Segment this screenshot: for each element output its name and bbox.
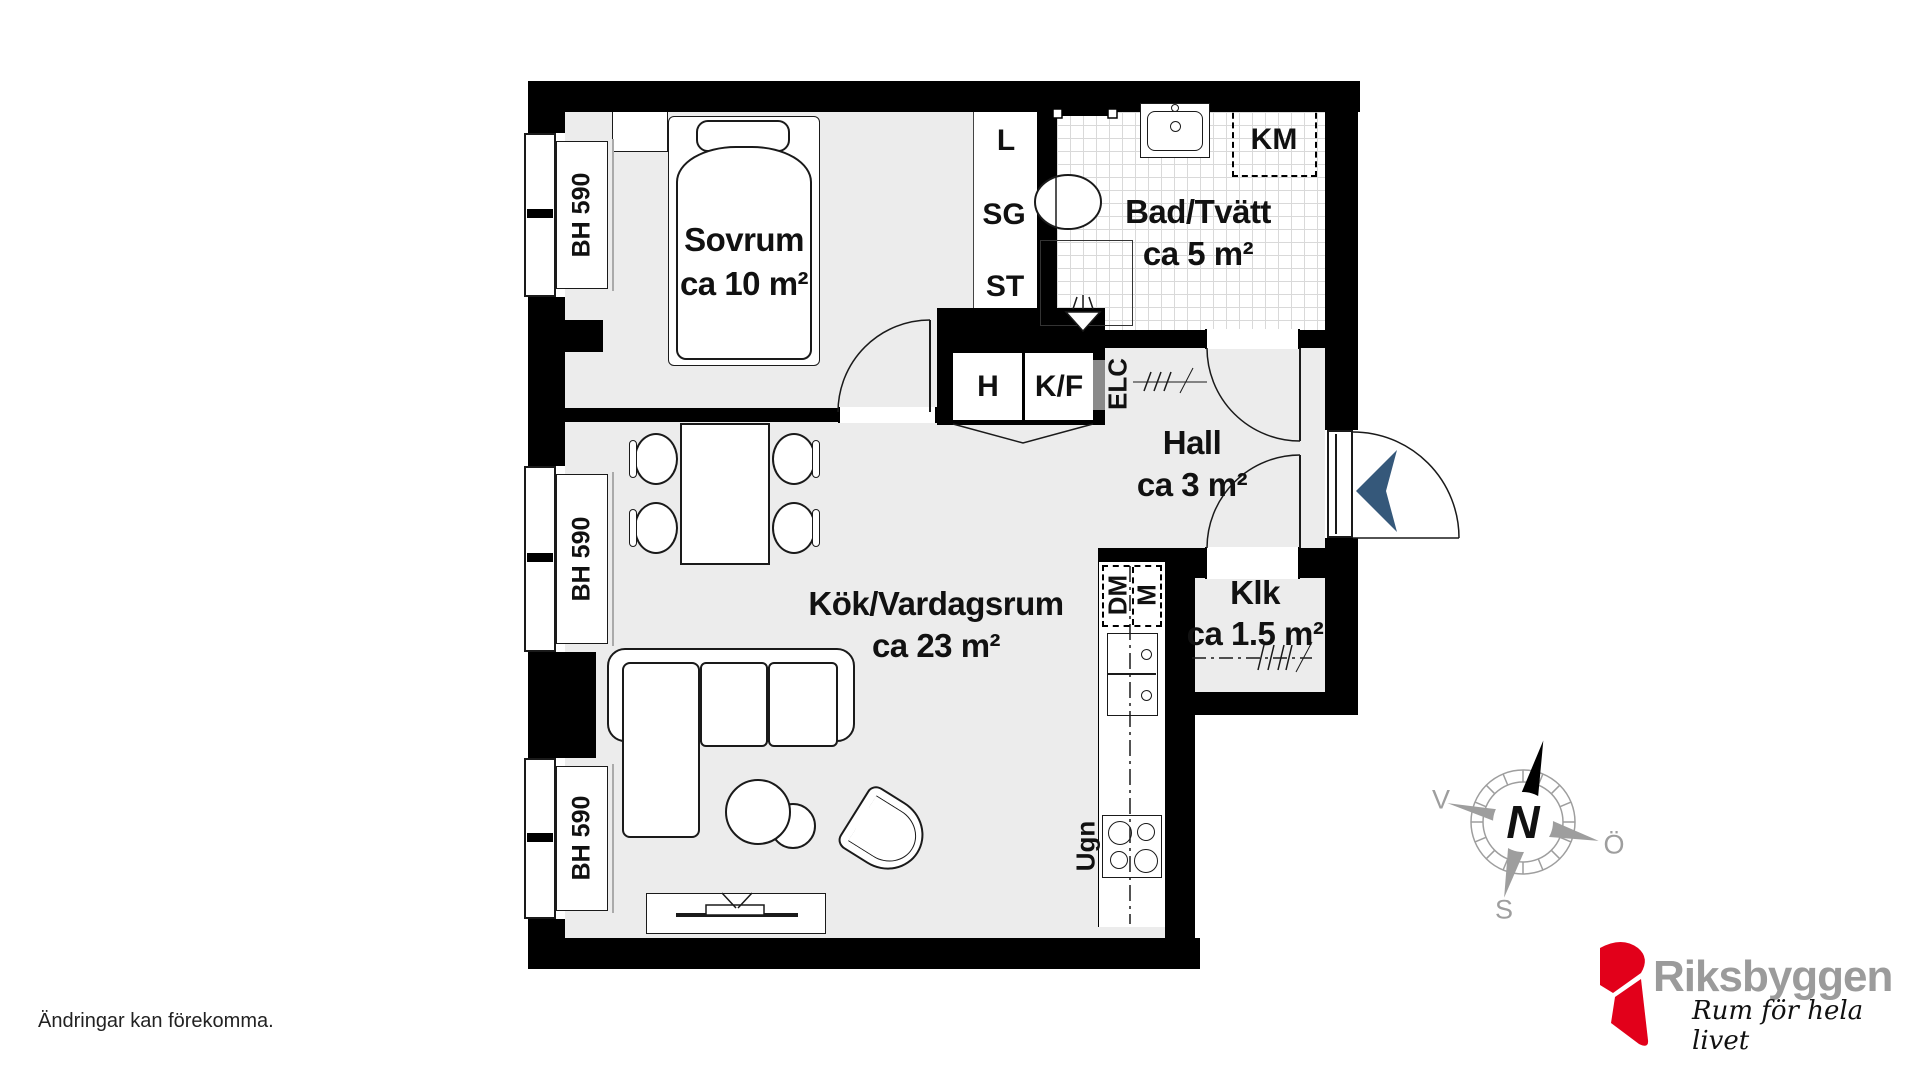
stove-burner: [1137, 823, 1155, 841]
wall-kitchen-bar: [1165, 548, 1195, 938]
fixture-label-m: M: [1132, 584, 1163, 606]
window-mullion: [527, 833, 553, 842]
wall-bottom: [528, 938, 1200, 969]
fixture-label-elc: ELC: [1103, 358, 1134, 410]
fixture-label-kf: K/F: [1035, 370, 1083, 404]
fixture-label-linen: L: [997, 124, 1015, 158]
room-area-hall: ca 3 m²: [1137, 466, 1247, 504]
bedroom-door-opening: [838, 407, 937, 423]
fixture-label-st: ST: [986, 270, 1024, 304]
entrance-arrow-icon: [1356, 450, 1397, 532]
room-label-bad: Bad/Tvätt: [1125, 193, 1271, 231]
dining-table: [680, 423, 770, 565]
chair-backrest: [812, 509, 820, 547]
fixture-label-sg: SG: [982, 198, 1025, 232]
room-label-kok: Kök/Vardagsrum: [808, 585, 1063, 623]
logo-brand-text: Riksbyggen: [1653, 952, 1892, 1002]
compass-south-label: S: [1495, 895, 1513, 926]
window-height-label: BH 590: [568, 796, 597, 881]
window-sill-line: [612, 472, 614, 646]
entrance-door-panel-line: [1335, 434, 1337, 534]
window-height-label: BH 590: [568, 517, 597, 602]
dining-chair: [634, 502, 678, 554]
room-area-kok: ca 23 m²: [872, 627, 1000, 665]
window-sill-line: [612, 764, 614, 913]
compass-north-label: N: [1506, 795, 1539, 849]
wall-left-c: [528, 652, 596, 758]
wall-bedroom-living: [565, 408, 838, 422]
logo-tagline-text: Rum för hela livet: [1692, 996, 1920, 1056]
entrance-door: [1327, 430, 1353, 538]
room-area-bad: ca 5 m²: [1143, 235, 1253, 273]
floorplan-page: Sovrum ca 10 m² Bad/Tvätt ca 5 m² Hall c…: [0, 0, 1920, 1080]
fixture-label-km: KM: [1251, 123, 1298, 157]
faucet-dot: [1171, 104, 1179, 112]
faucet-dot: [1170, 121, 1181, 132]
dining-chair: [634, 433, 678, 485]
kitchen-sink-unit: [1107, 633, 1158, 716]
chair-backrest: [812, 440, 820, 478]
sink-drain: [1141, 649, 1152, 660]
window-mullion: [527, 553, 553, 562]
sofa-cushion: [768, 662, 838, 747]
sink-divider: [1108, 673, 1156, 675]
stove-burner: [1134, 849, 1158, 873]
wall-left-a: [528, 81, 565, 133]
compass-east-arm: [1532, 814, 1601, 851]
fixture-label-ugn: Ugn: [1071, 821, 1102, 872]
wall-right-upper: [1325, 81, 1358, 432]
chair-backrest: [629, 509, 637, 547]
stove-burner: [1110, 851, 1128, 869]
tv-bench: [646, 893, 826, 934]
sink-drain: [1141, 690, 1152, 701]
wall-left-b: [528, 297, 565, 466]
entrance-door-swing: [1353, 432, 1459, 538]
window-height-label: BH 590: [568, 173, 597, 258]
dining-chair: [772, 433, 816, 485]
stove-burner: [1108, 821, 1132, 845]
shower-enclosure: [1040, 240, 1133, 326]
chair-backrest: [629, 440, 637, 478]
compass-east-label: Ö: [1603, 830, 1624, 861]
window-sill-line: [612, 139, 614, 291]
compass-west-label: V: [1432, 785, 1450, 816]
wall-left-d: [528, 919, 565, 969]
room-label-sovrum: Sovrum: [684, 221, 804, 259]
room-label-hall: Hall: [1163, 424, 1222, 462]
bathroom-door-opening: [1205, 329, 1300, 349]
fixture-label-h: H: [977, 370, 999, 404]
nightstand: [612, 108, 668, 152]
room-label-klk: Klk: [1230, 574, 1280, 612]
wall-left-pier: [565, 320, 603, 352]
dining-chair: [772, 502, 816, 554]
disclaimer-note: Ändringar kan förekomma.: [38, 1010, 274, 1033]
room-area-klk: ca 1.5 m²: [1187, 615, 1324, 653]
sofa-cushion: [700, 662, 768, 747]
room-area-sovrum: ca 10 m²: [680, 265, 808, 303]
coffee-table-large: [725, 779, 791, 845]
riksbyggen-logo-mark: [1600, 942, 1648, 1046]
fixture-label-dm: DM: [1103, 575, 1134, 615]
sofa-chaise: [622, 662, 700, 838]
window-mullion: [527, 209, 553, 218]
